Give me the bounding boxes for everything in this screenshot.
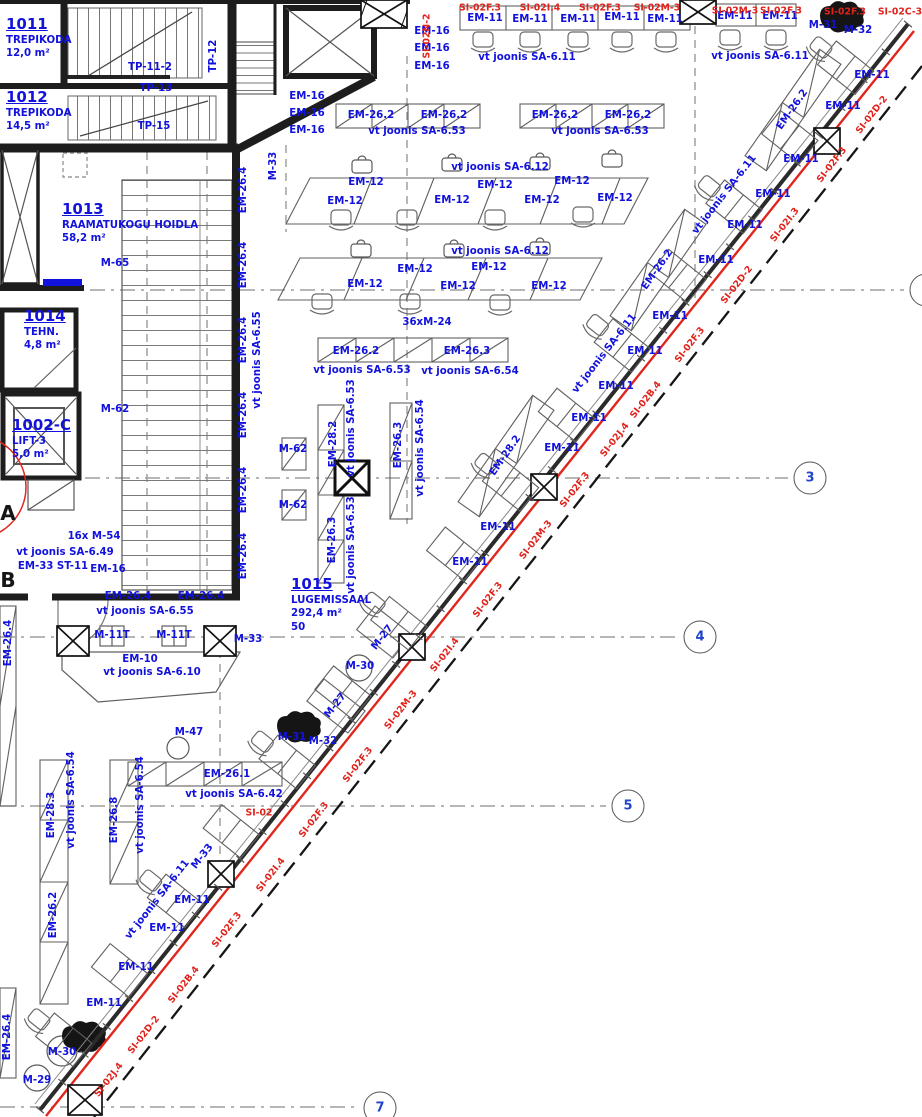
desk-row-top [460, 4, 796, 30]
chairs-top [471, 30, 788, 52]
floor-plan: TP-11-2TP-13TP-15TP-12M-33EM-16EM-16EM-1… [0, 0, 922, 1117]
grid-bubble: 3 [794, 462, 827, 495]
diagonal-shelf-units [307, 49, 841, 733]
column-xbox-icon [680, 0, 716, 24]
column-xbox-icon [57, 626, 89, 656]
chairs-tables [310, 207, 595, 315]
grid-number: 3 [805, 471, 814, 486]
grid-number: 5 [623, 799, 632, 814]
library-shelving [122, 180, 232, 590]
plan-linework [0, 0, 922, 1117]
grid-bubble: 4 [684, 621, 717, 654]
grid-number: 7 [375, 1101, 384, 1116]
grid-number: 4 [695, 630, 704, 645]
column-xbox-icon [204, 626, 236, 656]
window-desk [650, 249, 706, 302]
window-desk [147, 874, 203, 927]
stair-treads [66, 8, 274, 140]
shelf-units [0, 104, 664, 1078]
grid-bubble: 5 [612, 790, 645, 823]
window-desk [594, 319, 650, 372]
window-desk [706, 180, 762, 233]
grid-bubble: 7 [364, 1092, 397, 1117]
column-xbox-icon [399, 634, 425, 660]
reading-tables [278, 178, 648, 300]
column-xbox-icon [335, 461, 369, 495]
column-xbox-icon [531, 474, 557, 500]
column-xbox-icon [361, 0, 407, 28]
window-desk [315, 666, 371, 719]
column-xbox-icon [208, 861, 234, 887]
column-xbox-icon [68, 1085, 102, 1115]
window-desk [203, 805, 259, 858]
blue-wall-marker [43, 279, 82, 286]
